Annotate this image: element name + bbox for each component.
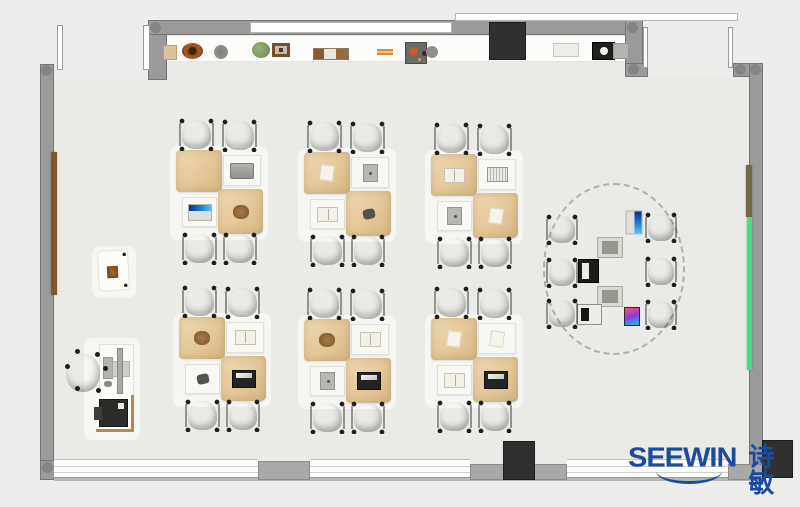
student-chair-blue xyxy=(476,287,513,320)
student-desk-white xyxy=(310,366,345,396)
student-chair-green xyxy=(433,286,470,319)
collab-device-laptop-small xyxy=(577,304,602,325)
shelf-item-box-tan xyxy=(163,45,177,60)
collab-chair-blue xyxy=(545,298,579,329)
outside-area xyxy=(637,0,800,77)
desk-item-tablet-gray xyxy=(320,372,335,390)
collab-chair-blue xyxy=(545,214,579,245)
shelf-item-frame-photo xyxy=(272,43,290,57)
desk-item-notebook-lines xyxy=(487,167,508,182)
student-desk-white xyxy=(478,323,516,354)
desk-item-paper xyxy=(487,207,503,225)
student-chair-green xyxy=(306,120,343,153)
desk-item-book-open xyxy=(444,168,465,183)
student-chair-blue xyxy=(349,121,386,154)
logo-text-en: SEEWIN xyxy=(628,445,736,473)
student-desk-tan xyxy=(304,152,350,194)
student-desk-white xyxy=(437,365,472,395)
student-chair-green xyxy=(306,287,343,320)
collab-chair-blue xyxy=(545,257,579,288)
desk-item-pouch-dark xyxy=(196,373,210,385)
student-chair-blue xyxy=(224,286,261,319)
student-chair-blue xyxy=(309,401,346,434)
student-desk-tan xyxy=(304,319,350,361)
student-desk-tan xyxy=(221,356,266,401)
desk-item-laptop-open xyxy=(188,204,212,221)
student-chair-blue xyxy=(476,123,513,156)
desk-item-pouch-dark xyxy=(362,207,376,219)
shelf-item-books-row xyxy=(313,48,349,60)
shelf-item-sticks-orange xyxy=(377,49,393,55)
student-desk-white xyxy=(182,197,217,227)
door-leaf xyxy=(57,25,63,70)
student-desk-white xyxy=(223,155,261,186)
desk-item-paper xyxy=(489,330,505,348)
student-desk-white xyxy=(437,201,472,231)
student-chair-green xyxy=(178,118,215,151)
shelf-item-box-gray xyxy=(613,43,629,59)
student-chair-blue xyxy=(436,400,473,433)
student-desk-tan xyxy=(218,189,263,234)
logo-text-cn: 诗敏 xyxy=(748,444,800,496)
student-chair-blue xyxy=(221,119,258,152)
teacher-mouse xyxy=(104,381,112,387)
desk-item-tablet-gray xyxy=(447,207,462,225)
wall-corner-joint xyxy=(628,64,639,75)
wall-corner-joint xyxy=(42,462,53,473)
student-desk-tan xyxy=(346,191,391,236)
lectern xyxy=(97,249,130,292)
student-chair-green xyxy=(350,234,386,267)
student-desk-white xyxy=(226,322,264,353)
printer xyxy=(99,399,128,427)
desk-item-laptop-dark xyxy=(232,370,256,388)
student-desk-tan xyxy=(473,357,518,402)
desk-item-tablet-gray xyxy=(363,164,378,182)
shelf-item-box-white xyxy=(553,43,579,57)
floor-plan-canvas: SEEWIN 诗敏 xyxy=(0,0,800,507)
shelf-item-plant-green xyxy=(252,42,270,58)
collab-chair-blue xyxy=(644,299,678,330)
student-chair-blue xyxy=(309,234,346,267)
student-desk-tan xyxy=(431,318,477,360)
door-leaf xyxy=(728,27,733,68)
desk-item-bag-brown xyxy=(233,205,249,219)
top-window xyxy=(250,22,452,33)
collab-device-laptop-open xyxy=(626,211,643,235)
shelf-item-basket-brown xyxy=(182,43,203,59)
collab-chair-blue xyxy=(644,212,678,243)
desk-item-paper xyxy=(319,164,335,182)
desk-item-laptop-dark xyxy=(484,371,508,389)
collab-device-tablet-colorful xyxy=(624,307,640,326)
student-desk-white xyxy=(478,159,516,190)
seewin-logo: SEEWIN 诗敏 xyxy=(628,444,800,496)
wall-corner-joint xyxy=(150,22,161,33)
bottom-wall-segment xyxy=(258,461,310,480)
student-desk-white xyxy=(351,157,389,188)
student-desk-tan xyxy=(473,193,518,238)
door-leaf xyxy=(143,25,150,70)
student-chair-green xyxy=(477,400,513,433)
desk-item-book-open xyxy=(444,373,465,388)
student-desk-white xyxy=(351,324,389,355)
student-chair-blue xyxy=(349,288,386,321)
desk-item-laptop-gray xyxy=(230,163,254,179)
student-chair-green xyxy=(477,236,513,269)
teacher-office-chair xyxy=(63,350,103,396)
student-desk-tan xyxy=(179,317,225,359)
wall-corner-joint xyxy=(627,22,638,33)
structural-column xyxy=(489,22,526,60)
bottom-window xyxy=(54,459,258,478)
collab-device-monitor-gray xyxy=(597,237,623,258)
student-chair-blue xyxy=(181,232,218,265)
logo-swoosh-icon xyxy=(656,471,722,484)
desk-item-book-open xyxy=(235,330,256,345)
student-desk-tan xyxy=(346,358,391,403)
bottom-window xyxy=(310,459,470,478)
desk-item-bag-brown xyxy=(319,333,335,347)
olive-board-right-wall xyxy=(746,165,752,217)
student-chair-blue xyxy=(184,399,221,432)
student-chair-green xyxy=(350,401,386,434)
structural-column xyxy=(503,441,535,480)
student-desk-tan xyxy=(176,150,222,192)
wall-corner-joint xyxy=(750,64,761,75)
student-chair-green xyxy=(433,122,470,155)
shelf-item-tray-clutter xyxy=(405,42,427,64)
student-chair-green xyxy=(181,285,218,318)
student-desk-tan xyxy=(431,154,477,196)
floor-plan xyxy=(0,0,800,507)
teacher-monitor xyxy=(117,348,123,394)
wall-corner-joint xyxy=(735,64,746,75)
collab-device-laptop-black xyxy=(578,259,599,283)
student-chair-green xyxy=(225,399,261,432)
student-desk-white xyxy=(310,199,345,229)
desk-item-book-open xyxy=(317,207,338,222)
desk-item-book-open xyxy=(360,332,381,347)
desk-item-laptop-dark xyxy=(357,372,381,390)
shelf-item-machine-dark xyxy=(592,42,615,60)
shelf-item-pot-gray xyxy=(214,45,228,59)
wood-strip-left-wall xyxy=(51,152,57,295)
top-window xyxy=(455,13,738,21)
desk-item-bag-brown xyxy=(194,331,210,345)
student-chair-blue xyxy=(436,236,473,269)
desk-item-paper xyxy=(446,330,462,348)
green-board-right-wall xyxy=(747,217,752,370)
door-leaf xyxy=(643,27,648,68)
student-desk-white xyxy=(185,364,220,394)
student-chair-green xyxy=(222,232,258,265)
collab-chair-blue xyxy=(644,256,678,287)
wall-corner-joint xyxy=(41,65,52,76)
